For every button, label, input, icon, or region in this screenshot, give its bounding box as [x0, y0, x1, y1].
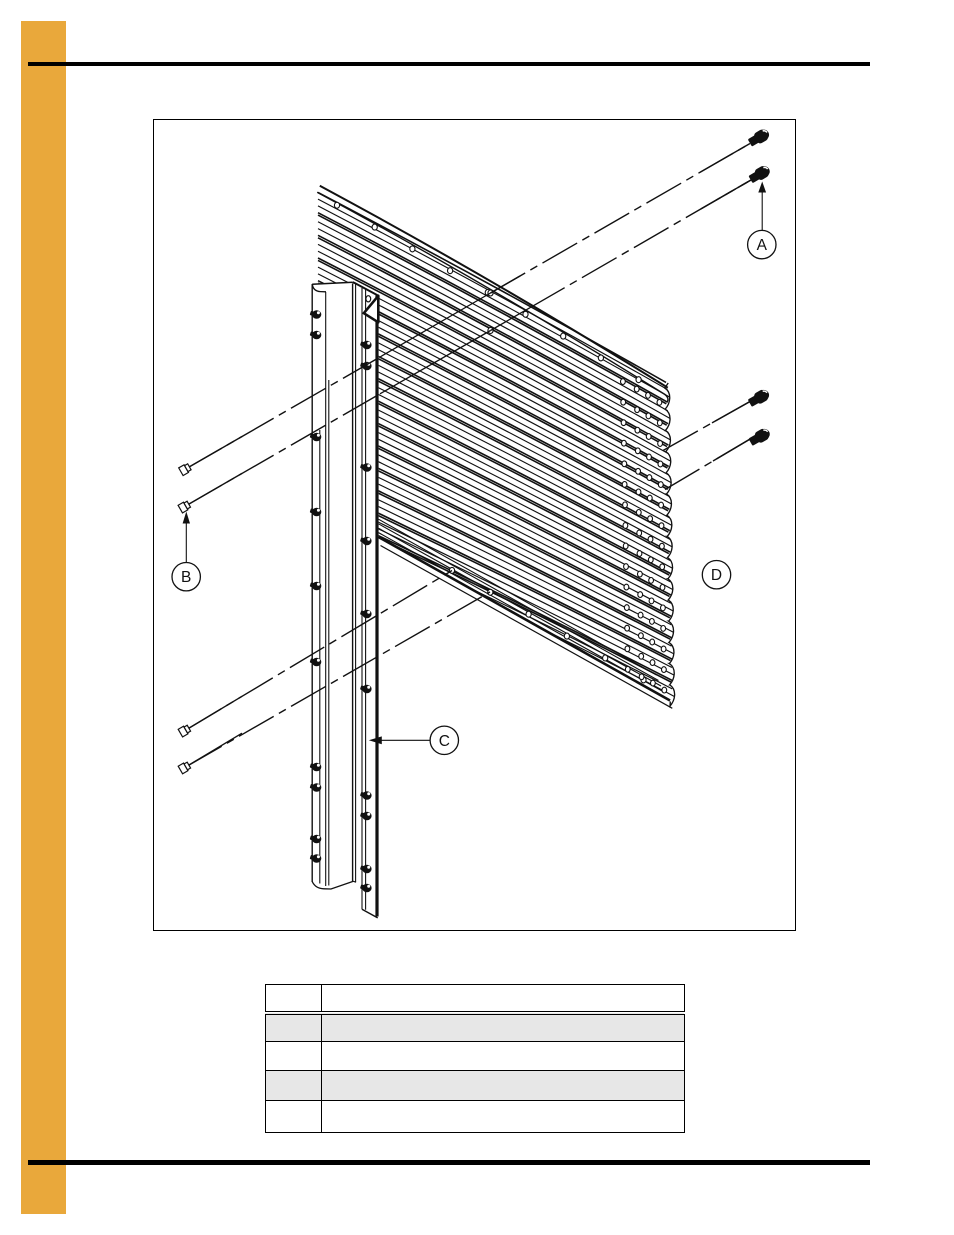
svg-text:A: A: [757, 237, 768, 254]
svg-text:D: D: [711, 567, 722, 584]
svg-text:B: B: [181, 569, 191, 586]
svg-text:C: C: [439, 733, 450, 750]
